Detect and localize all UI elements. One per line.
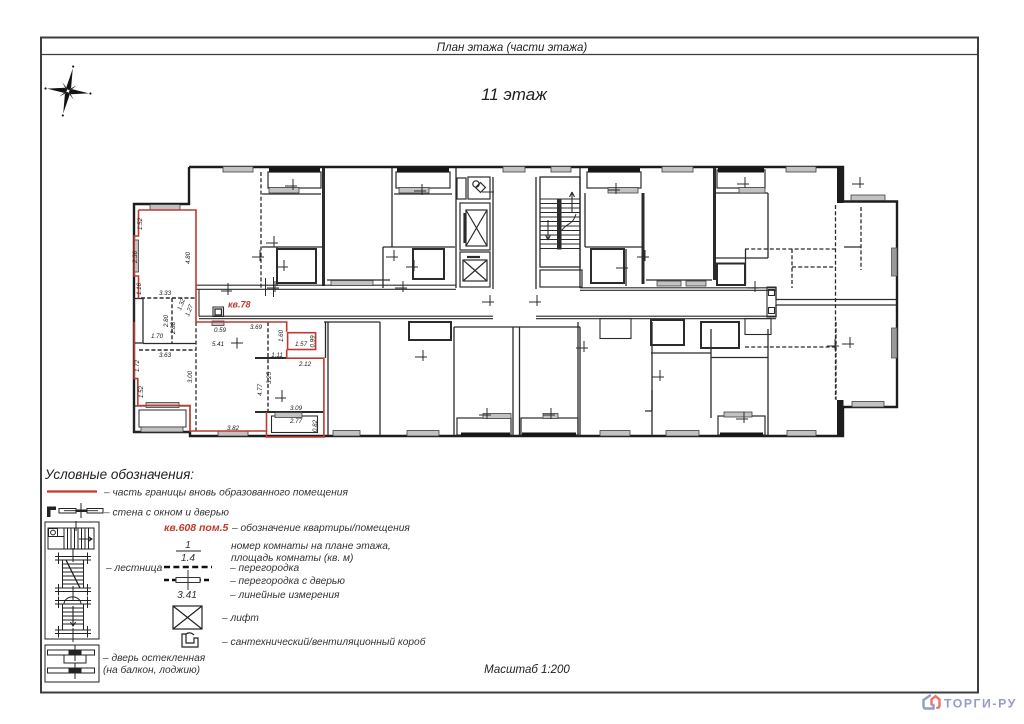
svg-text:0.82: 0.82 [312,419,319,432]
svg-text:Условные обозначения:: Условные обозначения: [44,467,194,482]
svg-text:0.59: 0.59 [214,327,227,334]
svg-text:2.80: 2.80 [163,314,170,328]
svg-text:1.16: 1.16 [136,282,143,295]
svg-text:1.4: 1.4 [181,553,195,564]
svg-text:3.63: 3.63 [159,352,172,359]
svg-text:2.77: 2.77 [289,418,303,425]
svg-text:1.60: 1.60 [278,329,285,342]
svg-text:3.09: 3.09 [290,405,303,412]
svg-text:4.80: 4.80 [185,251,192,264]
svg-text:Масштаб 1:200: Масштаб 1:200 [484,664,570,676]
svg-text:1.57: 1.57 [295,341,308,348]
svg-text:11 этаж: 11 этаж [481,85,548,104]
svg-text:План этажа (части этажа): План этажа (части этажа) [437,42,588,54]
svg-text:2.88: 2.88 [170,321,177,335]
svg-text:3.69: 3.69 [250,324,263,331]
svg-text:– стена с окном и дверью: – стена с окном и дверью [103,508,229,519]
svg-text:1.11: 1.11 [271,352,283,359]
svg-text:2.12: 2.12 [298,361,312,368]
svg-text:номер комнаты на плане этажа,: номер комнаты на плане этажа, [231,541,391,552]
svg-text:– часть границы вновь образова: – часть границы вновь образованного поме… [103,487,348,499]
svg-text:кв.78: кв.78 [228,300,251,310]
svg-text:0.99: 0.99 [310,335,317,348]
svg-text:1.72: 1.72 [134,359,141,372]
svg-text:3.25: 3.25 [266,371,273,384]
svg-text:3.41: 3.41 [177,590,197,601]
svg-text:2.36: 2.36 [132,250,139,264]
svg-text:– лифт: – лифт [221,612,259,624]
svg-text:– линейные измерения: – линейные измерения [229,590,340,601]
svg-text:– обозначение квартиры/помещен: – обозначение квартиры/помещения [231,522,410,534]
svg-text:3.00: 3.00 [187,370,194,383]
svg-text:4.77: 4.77 [257,383,264,396]
svg-text:ТОРГИ-РУ: ТОРГИ-РУ [944,697,1017,711]
svg-text:3.82: 3.82 [227,425,240,432]
svg-text:– дверь остекленная: – дверь остекленная [102,653,206,664]
svg-text:1.52: 1.52 [137,217,144,230]
svg-text:кв.608 пом.5: кв.608 пом.5 [164,522,229,534]
svg-text:5.41: 5.41 [212,341,224,348]
svg-text:1.52: 1.52 [138,385,145,398]
svg-text:– перегородка: – перегородка [229,563,299,574]
svg-text:3.33: 3.33 [159,290,172,297]
svg-text:1: 1 [185,540,191,551]
svg-text:– сантехнический/вентиляционны: – сантехнический/вентиляционный короб [221,636,427,648]
svg-text:(на балкон, лоджию): (на балкон, лоджию) [103,664,200,676]
svg-text:1.70: 1.70 [151,333,164,340]
svg-text:– лестница: – лестница [105,563,163,574]
svg-text:– перегородка с дверью: – перегородка с дверью [229,576,345,587]
